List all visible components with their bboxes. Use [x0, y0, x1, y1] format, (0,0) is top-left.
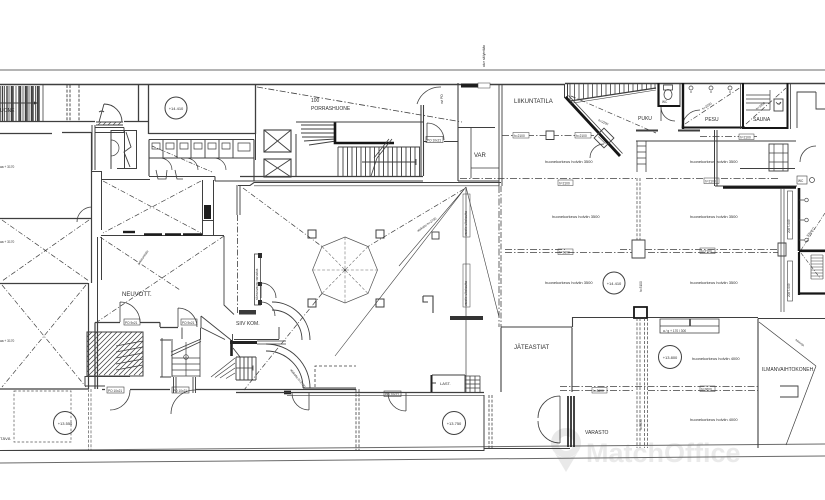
- svg-text:NEUVOTT.: NEUVOTT.: [122, 292, 152, 298]
- svg-text:h=2100: h=2100: [559, 182, 570, 186]
- svg-text:h=2100: h=2100: [576, 134, 587, 138]
- svg-text:huonekorkeus holviin 3500: huonekorkeus holviin 3500: [690, 280, 738, 285]
- svg-text:PESU: PESU: [705, 117, 719, 123]
- svg-text:PO 10x21: PO 10x21: [108, 389, 122, 393]
- svg-text:+14.410: +14.410: [607, 281, 622, 286]
- svg-text:h=1900: h=1900: [755, 101, 766, 111]
- svg-text:PUKU: PUKU: [638, 116, 652, 122]
- svg-text:MatchOffice: MatchOffice: [586, 438, 741, 468]
- svg-text:huonekorkeus holviin 4000: huonekorkeus holviin 4000: [690, 417, 738, 422]
- svg-text:alue säilytetään: alue säilytetään: [482, 45, 486, 67]
- svg-text:2097-449: 2097-449: [787, 283, 791, 297]
- svg-text:JÄTEASTIAT: JÄTEASTIAT: [514, 344, 550, 351]
- svg-text:a / g + 170 / 300: a / g + 170 / 300: [663, 329, 686, 333]
- svg-text:TÄVÄ: TÄVÄ: [0, 436, 11, 441]
- svg-text:WC: WC: [662, 100, 668, 104]
- svg-text:PO 10x21: PO 10x21: [385, 393, 399, 397]
- svg-text:h=2200: h=2200: [598, 118, 610, 126]
- svg-text:ILMANVAIHTOKONEH.: ILMANVAIHTOKONEH.: [762, 367, 815, 373]
- svg-text:huonekorkeus holviin 3500: huonekorkeus holviin 3500: [545, 159, 593, 164]
- svg-text:PO 9x21: PO 9x21: [182, 321, 195, 325]
- svg-text:h=3630: h=3630: [639, 419, 643, 430]
- svg-text:huonekorkeus holviin 3500: huonekorkeus holviin 3500: [545, 280, 593, 285]
- svg-text:h=2100: h=2100: [559, 251, 570, 255]
- svg-text:ovi PO: ovi PO: [440, 94, 444, 104]
- svg-text:PORRASHUONE: PORRASHUONE: [311, 106, 351, 112]
- svg-text:h=3100: h=3100: [639, 281, 643, 292]
- svg-text:PO 10x21: PO 10x21: [427, 139, 441, 143]
- svg-text:varatie ulkokautta: varatie ulkokautta: [464, 281, 468, 306]
- svg-text:savunp.: savunp.: [794, 338, 805, 348]
- svg-text:+13.750: +13.750: [447, 421, 462, 426]
- svg-text:h=3600: h=3600: [593, 389, 604, 393]
- svg-text:WC: WC: [798, 179, 804, 183]
- svg-text:h=2100: h=2100: [514, 134, 525, 138]
- svg-text:2097-449: 2097-449: [787, 219, 791, 233]
- svg-text:aa + 3170: aa + 3170: [0, 339, 14, 343]
- svg-text:VAR: VAR: [474, 153, 487, 159]
- svg-text:huonekorkeus holviin 3500: huonekorkeus holviin 3500: [690, 214, 738, 219]
- svg-text:huonekorkeus holviin 3500: huonekorkeus holviin 3500: [552, 214, 600, 219]
- svg-text:PO 9x21: PO 9x21: [125, 321, 138, 325]
- svg-text:SAUNA: SAUNA: [753, 117, 771, 123]
- svg-text:100: 100: [311, 98, 320, 104]
- svg-text:UONE: UONE: [0, 108, 15, 114]
- svg-text:alakatto h=2700: alakatto h=2700: [289, 368, 306, 389]
- svg-text:huonekorkeus holviin 4000: huonekorkeus holviin 4000: [692, 356, 740, 361]
- svg-text:SIIV KOM.: SIIV KOM.: [236, 321, 260, 327]
- svg-text:LIIKUNTATILA: LIIKUNTATILA: [514, 99, 553, 105]
- svg-text:h=2100: h=2100: [740, 136, 751, 140]
- svg-text:aa + 3170: aa + 3170: [0, 165, 14, 169]
- svg-text:+13.800: +13.800: [663, 355, 678, 360]
- svg-text:h=3600: h=3600: [701, 388, 712, 392]
- svg-text:+13.550: +13.550: [58, 421, 73, 426]
- svg-text:h=2100: h=2100: [701, 250, 712, 254]
- svg-text:h=2200: h=2200: [701, 102, 712, 111]
- svg-text:VARASTO: VARASTO: [585, 430, 609, 436]
- svg-text:SÄHKÖ: SÄHKÖ: [806, 226, 817, 238]
- svg-text:+14.410: +14.410: [169, 106, 184, 111]
- svg-text:aa + 3170: aa + 3170: [0, 240, 14, 244]
- svg-text:varatie ulkokautta: varatie ulkokautta: [464, 211, 468, 236]
- svg-text:poistumistie: poistumistie: [137, 249, 150, 265]
- svg-text:LAST.: LAST.: [440, 381, 451, 386]
